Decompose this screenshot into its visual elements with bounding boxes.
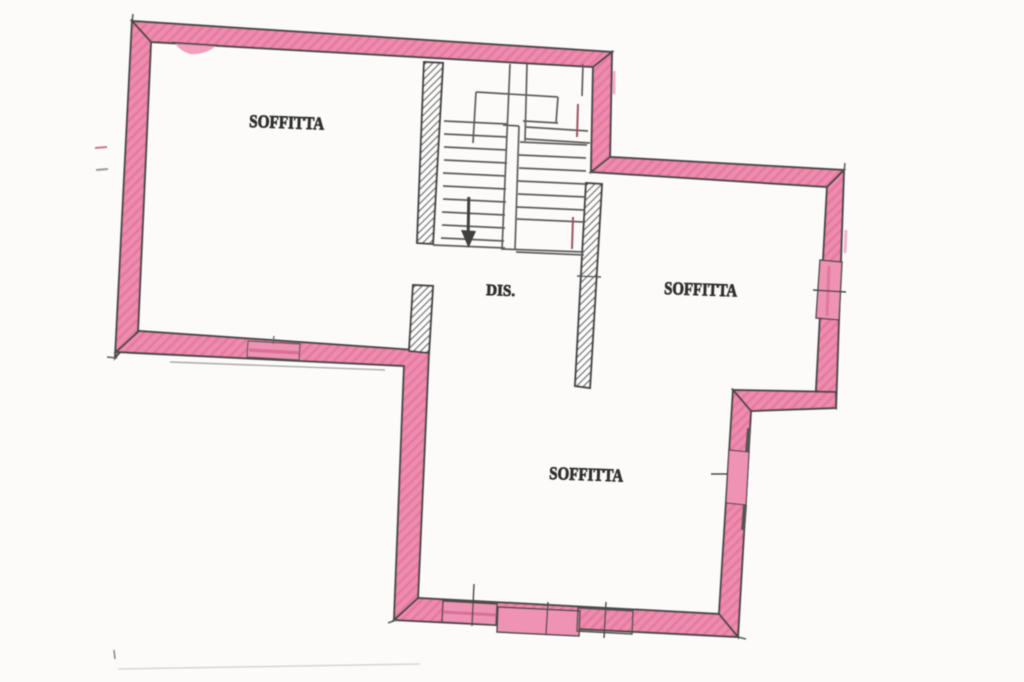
svg-text:DIS.: DIS.	[486, 282, 516, 300]
svg-text:SOFFITTA: SOFFITTA	[549, 463, 624, 486]
svg-text:SOFFITTA: SOFFITTA	[664, 278, 738, 301]
svg-text:SOFFITTA: SOFFITTA	[249, 111, 325, 134]
